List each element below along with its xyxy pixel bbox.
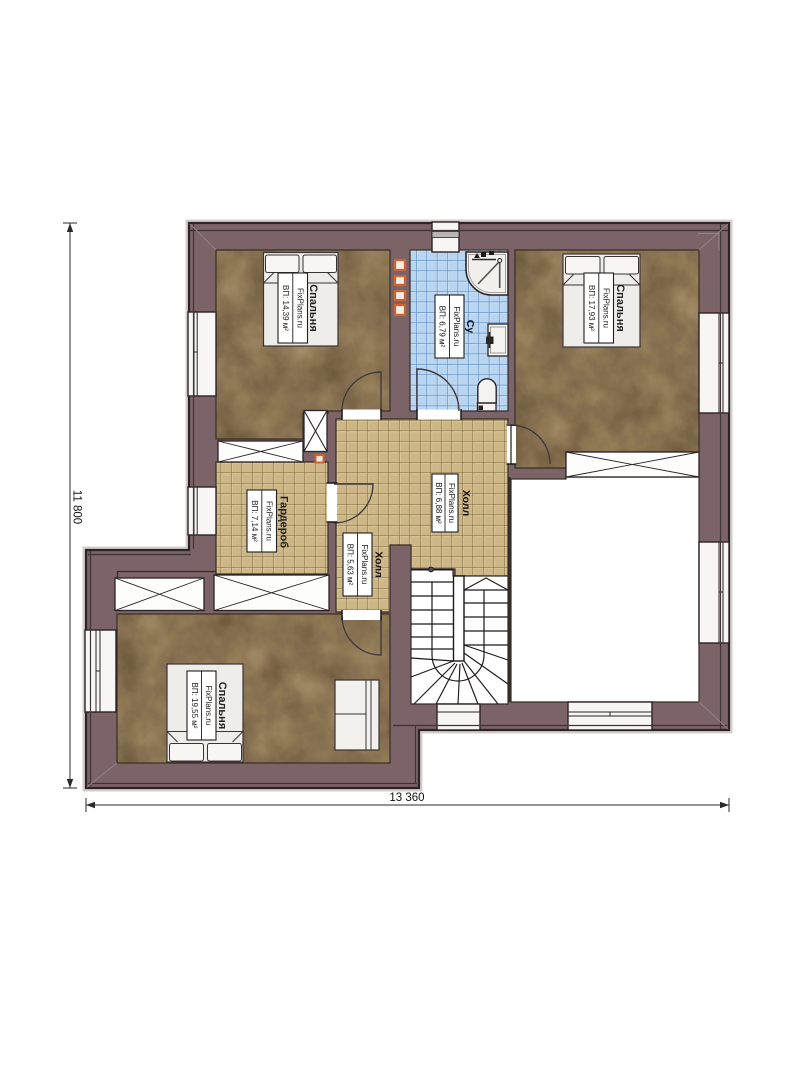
svg-text:13 360: 13 360 <box>389 792 424 804</box>
svg-text:ВП: 7,14 м²: ВП: 7,14 м² <box>250 500 259 542</box>
svg-text:Спальня: Спальня <box>216 682 228 730</box>
svg-text:11 800: 11 800 <box>71 490 83 524</box>
svg-text:ВП: 19,55 м²: ВП: 19,55 м² <box>190 683 199 729</box>
svg-text:ВП: 14,39 м²: ВП: 14,39 м² <box>281 285 290 331</box>
svg-text:Спальня: Спальня <box>307 284 319 332</box>
svg-text:FixPlans.ru: FixPlans.ru <box>265 501 274 541</box>
svg-text:FixPlans.ru: FixPlans.ru <box>447 483 456 523</box>
svg-text:Спальня: Спальня <box>614 284 626 332</box>
svg-text:Холл: Холл <box>460 490 472 516</box>
svg-text:ВП: 17,93 м²: ВП: 17,93 м² <box>587 285 596 331</box>
svg-text:ВП: 6,88 м²: ВП: 6,88 м² <box>434 482 443 524</box>
svg-text:FixPlans.ru: FixPlans.ru <box>296 288 305 328</box>
svg-text:ВП: 6,79 м²: ВП: 6,79 м² <box>438 306 447 348</box>
svg-text:ВП: 5,63 м²: ВП: 5,63 м² <box>346 544 355 586</box>
svg-text:FixPlans.ru: FixPlans.ru <box>602 288 611 328</box>
svg-text:FixPlans.ru: FixPlans.ru <box>204 685 213 725</box>
svg-text:Холл: Холл <box>372 551 384 577</box>
svg-text:Су: Су <box>464 320 476 334</box>
svg-text:Гардероб: Гардероб <box>278 496 290 548</box>
svg-text:FixPlans.ru: FixPlans.ru <box>452 306 461 346</box>
svg-text:FixPlans.ru: FixPlans.ru <box>360 544 369 584</box>
